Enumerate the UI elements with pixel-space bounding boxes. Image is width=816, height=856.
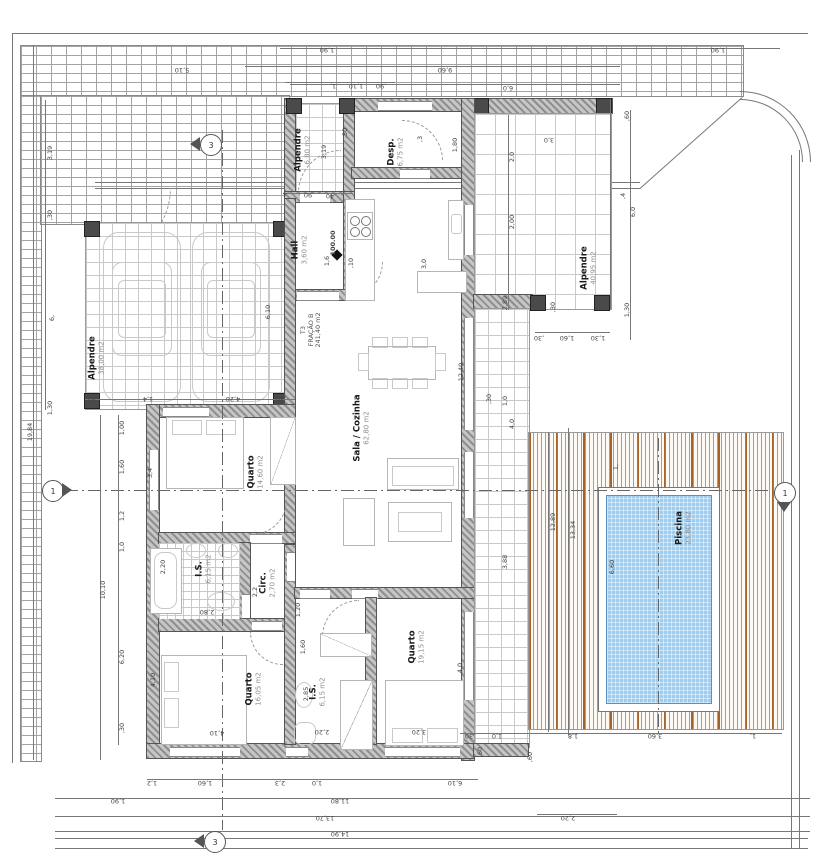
dimension-label: 6,20 (118, 650, 126, 664)
dimension-label: 3,4 (146, 468, 154, 478)
room-label: Piscina23,80 m2 (676, 511, 693, 545)
dimension-label: ,30 (46, 210, 54, 220)
dimension-label: 4,20 (226, 395, 240, 403)
room-area: 23,80 m2 (685, 511, 693, 545)
dimension-label: 6,0 (629, 207, 637, 217)
room-name: Quarto (246, 672, 255, 706)
room-name: Sala / Cozinha (354, 394, 363, 461)
dimension-label: ,40 (326, 192, 336, 200)
room-name: I.S. (310, 677, 319, 706)
dimension-label: 2,0 (508, 152, 516, 162)
dimension-label: 2,3 (275, 779, 285, 787)
dimension-label: 4,10 (210, 729, 224, 737)
section-marker: 1 (774, 482, 794, 502)
room-name: Quarto (248, 455, 257, 489)
section-marker-arrow-icon (62, 483, 72, 497)
dimension-label: 1, (612, 464, 620, 470)
dimension-label: 1,0 (492, 732, 502, 740)
dimension-label: ,30 (534, 334, 544, 342)
room-area: 38,00 m2 (98, 336, 106, 379)
dimension-label: 1, (330, 82, 336, 90)
dimension-label: ,10 (347, 258, 355, 268)
dimension-label: 1,2 (147, 779, 157, 787)
dimension-label: ,30 (341, 128, 349, 138)
dimension-label: 1,60 (560, 334, 574, 342)
room-name: Quarto (409, 630, 418, 664)
dimension-label: 2,20 (159, 560, 167, 574)
dimension-label: 14,90 (331, 830, 350, 838)
dimension-label: 13,70 (316, 814, 335, 822)
dimension-label: 13,34 (569, 521, 577, 540)
section-marker-number: 1 (774, 482, 796, 504)
dimension-label: 3,20 (412, 728, 426, 736)
room-name: I.S. (196, 554, 205, 583)
room-label: Alpendre6,80 m2 (295, 128, 312, 171)
room-label: I.S.6,15 m2 (310, 677, 327, 706)
dimension-label: 3,60 (648, 732, 662, 740)
dimension-label: 4,0 (456, 663, 464, 673)
room-name: Piscina (676, 511, 685, 545)
room-area: 14,60 m2 (257, 455, 265, 489)
dimension-label: 1,8 (568, 732, 578, 740)
room-name: Hall (292, 235, 301, 264)
room-label: Sala / Cozinha62,80 m2 (354, 394, 371, 461)
room-label: I.S.6,15 m2 (196, 554, 213, 583)
dimension-label: 11,80 (331, 797, 350, 805)
dimension-label: ,30 (465, 732, 475, 740)
floor-plan: Alpendre6,80 m2Desp.6,75 m2Hall3,60 m2Sa… (0, 0, 816, 856)
section-marker-arrow-icon (190, 137, 200, 151)
fraction-label: T3FRAÇÃO B241,40 m2 (300, 312, 323, 347)
dimension-label: 12,40 (457, 363, 465, 382)
dimension-label: ,90 (376, 82, 386, 90)
dimension-label: 3,19 (320, 145, 328, 159)
dimension-label: 2,20 (315, 728, 329, 736)
dimension-label: 1,30 (623, 303, 631, 317)
dimension-label: 2,20 (561, 814, 575, 822)
dimension-label: 2,2 (251, 587, 259, 597)
dimension-label: 6,10 (264, 305, 272, 319)
dimension-label: ,4 (619, 193, 627, 199)
room-area: 3,60 m2 (301, 235, 309, 264)
dimension-label: 4,0 (508, 419, 516, 429)
section-marker: 1 (42, 480, 62, 500)
room-label: Circ.2,70 m2 (260, 568, 277, 597)
dimension-label: 1,0 (118, 542, 126, 552)
dimension-label: 1,60 (198, 779, 212, 787)
dimension-label: 6,60 (608, 560, 616, 574)
dimension-label: 1, (750, 732, 756, 740)
dimension-label: 1,90 (111, 797, 125, 805)
dimension-label: 2,80 (200, 608, 214, 616)
dimension-label: 3,88 (501, 555, 509, 569)
dimension-label: 1,30 (46, 401, 54, 415)
section-marker-number: 3 (200, 134, 222, 156)
section-marker: 3 (204, 831, 224, 851)
room-area: 6,75 m2 (397, 137, 405, 166)
dimension-label: ,30 (276, 395, 286, 403)
room-label: Alpendre40,95 m2 (581, 246, 598, 289)
room-label: Alpendre38,00 m2 (89, 336, 106, 379)
room-name: Alpendre (581, 246, 590, 289)
dimension-label: 1,30 (591, 334, 605, 342)
room-area: 40,95 m2 (590, 246, 598, 289)
dimension-label: 1,80 (451, 138, 459, 152)
fraction-line: 241,40 m2 (315, 312, 323, 347)
dimension-label: ,4 (283, 190, 289, 198)
dimension-label: 2,85 (302, 687, 310, 701)
dimension-label: 1,4 (143, 395, 153, 403)
dimension-label: ,60 (623, 111, 631, 121)
room-name: Desp. (388, 137, 397, 166)
room-label: Desp.6,75 m2 (388, 137, 405, 166)
dimension-label: ,30 (549, 302, 557, 312)
dimension-label: 1,90 (711, 46, 725, 54)
dimension-label: ,3 (416, 136, 424, 142)
dimension-label: 1,60 (299, 640, 307, 654)
labels-layer: Alpendre6,80 m2Desp.6,75 m2Hall3,60 m2Sa… (0, 0, 816, 856)
room-name: Circ. (260, 568, 269, 597)
room-label: Quarto16,05 m2 (246, 672, 263, 706)
room-area: 62,80 m2 (363, 394, 371, 461)
dimension-label: 1,0 (312, 779, 322, 787)
dimension-label: 1,60 (118, 460, 126, 474)
room-area: 6,80 m2 (304, 128, 312, 171)
dimension-label: ,90 (304, 191, 314, 199)
dimension-label: 1,6 (323, 256, 331, 266)
dimension-label: 10,10 (99, 581, 107, 600)
section-marker-arrow-icon (777, 502, 791, 512)
level-label: 100.00 (329, 230, 337, 255)
dimension-label: ,30 (88, 395, 98, 403)
dimension-label: 4,10 (149, 673, 157, 687)
dimension-label: 1,20 (294, 603, 302, 617)
dimension-label: 19,84 (26, 423, 34, 442)
section-marker: 3 (200, 134, 220, 154)
dimension-label: 6,0 (503, 84, 513, 92)
dimension-label: 3,0 (420, 259, 428, 269)
dimension-label: 1,10 (349, 82, 363, 90)
room-name: Alpendre (89, 336, 98, 379)
dimension-label: ,30 (118, 723, 126, 733)
dimension-label: 6, (48, 315, 56, 321)
dimension-label: 3,19 (46, 146, 54, 160)
dimension-label: ,60 (476, 747, 484, 757)
dimension-label: 1,2 (118, 511, 126, 521)
room-label: Quarto19,15 m2 (409, 630, 426, 664)
room-area: 19,15 m2 (418, 630, 426, 664)
section-marker-number: 1 (42, 480, 64, 502)
dimension-label: 6,10 (448, 779, 462, 787)
dimension-label: 5,10 (175, 66, 189, 74)
section-marker-arrow-icon (194, 834, 204, 848)
room-area: 6,15 m2 (205, 554, 213, 583)
dimension-label: 1,90 (320, 46, 334, 54)
room-area: 16,05 m2 (255, 672, 263, 706)
dimension-label: 12,89 (549, 513, 557, 532)
room-area: 6,15 m2 (319, 677, 327, 706)
section-marker-number: 3 (204, 831, 226, 853)
room-label: Quarto14,60 m2 (248, 455, 265, 489)
dimension-label: ,30 (485, 394, 493, 404)
dimension-label: ,60 (526, 752, 534, 762)
dimension-label: 2,89 (501, 296, 509, 310)
dimension-label: 1,00 (118, 421, 126, 435)
dimension-label: 9,60 (438, 66, 452, 74)
room-area: 2,70 m2 (269, 568, 277, 597)
room-name: Alpendre (295, 128, 304, 171)
dimension-label: 1,0 (501, 396, 509, 406)
room-label: Hall3,60 m2 (292, 235, 309, 264)
dimension-label: 3,0 (544, 136, 554, 144)
dimension-label: 2,00 (508, 215, 516, 229)
